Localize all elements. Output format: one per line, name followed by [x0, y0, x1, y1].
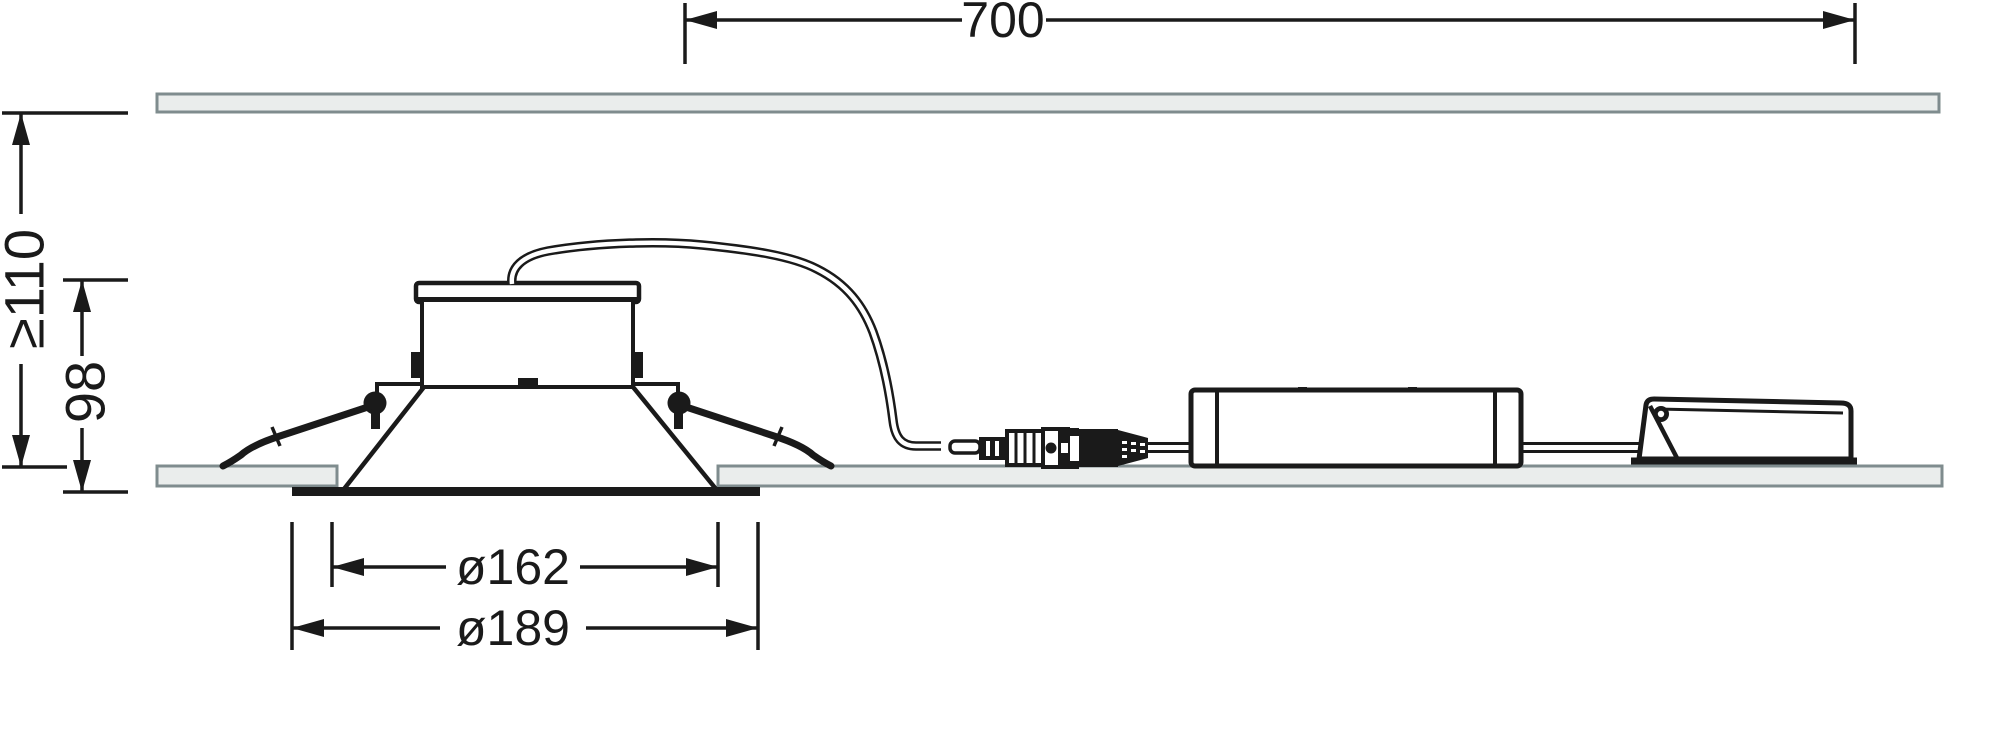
fixture-housing: [422, 300, 633, 387]
arrowhead-right-icon: [1823, 11, 1855, 29]
arrowhead-left-icon: [292, 619, 324, 637]
arrowhead-down-icon: [73, 460, 91, 492]
arrowhead-right-icon: [686, 558, 718, 576]
technical-drawing-canvas: 700 ≥110 98 ø162 ø189: [0, 0, 2000, 751]
spring-clip-left: [223, 352, 423, 466]
driver-top-tick: [1408, 387, 1417, 392]
arrowhead-left-icon: [332, 558, 364, 576]
ceiling-panel-right: [718, 466, 1942, 486]
crimp-slit: [986, 441, 990, 456]
spring-arm-left: [223, 405, 374, 466]
dimension-label-dia189: ø189: [456, 600, 570, 656]
coupler-dot: [1046, 443, 1057, 454]
arrowhead-left-icon: [685, 11, 717, 29]
screw-hole-center: [1658, 411, 1664, 417]
downlight-installation-diagram: 700 ≥110 98 ø162 ø189: [0, 0, 2000, 751]
spring-arm-right: [680, 405, 831, 466]
crimp-slit: [995, 441, 999, 456]
arrowhead-up-icon: [12, 113, 30, 145]
ceiling-panel-left: [157, 466, 337, 486]
junction-box: [1631, 399, 1857, 461]
spring-clip-right: [631, 352, 831, 466]
driver-top-tick: [1298, 387, 1307, 392]
dimension-cable-run: 700: [685, 0, 1855, 64]
dimension-label-700: 700: [961, 0, 1044, 48]
arrowhead-down-icon: [12, 435, 30, 467]
dimension-cutout-diameter: ø162: [332, 522, 718, 595]
latch-tab-bottom: [1068, 461, 1079, 469]
spring-bracket-right: [634, 384, 678, 394]
driver-housing: [1191, 390, 1521, 466]
latch-tab-top: [1068, 428, 1079, 436]
spring-pin-right: [674, 407, 683, 429]
plug-nose: [950, 441, 980, 453]
dimension-fixture-height: 98: [54, 280, 129, 492]
coupler-notch: [1061, 443, 1068, 453]
arrowhead-right-icon: [726, 619, 758, 637]
arrowhead-up-icon: [73, 280, 91, 312]
downlight-fixture: [223, 283, 831, 496]
trim-flange: [292, 487, 760, 496]
spring-bracket-left: [377, 384, 421, 394]
fixture-center-tab: [518, 378, 538, 387]
spring-pin-left: [371, 407, 380, 429]
dimension-label-98: 98: [54, 361, 117, 423]
spring-mount-block-left: [411, 352, 423, 378]
socket-body: [1079, 429, 1118, 467]
dimension-label-dia162: ø162: [456, 539, 570, 595]
plug-crimp: [979, 437, 1007, 460]
led-driver-box: [1191, 387, 1640, 466]
dimension-label-min110: ≥110: [0, 229, 56, 349]
cable-connector: [950, 428, 1192, 469]
upper-structure-panel: [157, 94, 1939, 112]
spring-mount-block-right: [631, 352, 643, 378]
